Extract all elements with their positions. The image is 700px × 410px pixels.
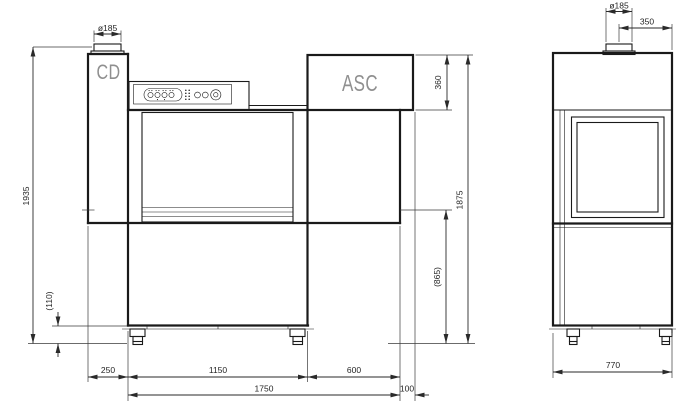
panel-button-marks xyxy=(149,90,174,100)
panel-button-icon xyxy=(169,92,174,97)
dim-cabinet-width-label: 1150 xyxy=(209,365,228,375)
technical-drawing-canvas: CD xyxy=(0,0,700,410)
cd-duct-tower: CD xyxy=(88,54,128,326)
dim-frame-length-label: 1750 xyxy=(255,384,274,394)
dim-base-height: (110) xyxy=(44,291,127,357)
dim-depth: 770 xyxy=(553,333,672,378)
side-door-window xyxy=(577,123,658,213)
dim-side-chimney-diameter-label: ø185 xyxy=(609,1,629,11)
dim-body-height-label: 1875 xyxy=(455,190,465,209)
machine-foot xyxy=(290,329,305,345)
dim-front-chimney-diameter: ø185 xyxy=(94,23,121,42)
panel-lamp-icon xyxy=(202,92,208,98)
asc-label: ASC xyxy=(342,70,378,96)
hood-section xyxy=(82,106,400,326)
front-view: CD xyxy=(21,23,475,401)
panel-lamp-icon xyxy=(195,92,201,98)
dim-outfeed-width-label: 600 xyxy=(347,365,361,375)
dim-overall-height: 1935 xyxy=(21,47,127,344)
machine-foot xyxy=(660,329,673,345)
dim-front-chimney-diameter-label: ø185 xyxy=(98,23,118,33)
panel-knob-icon xyxy=(211,90,221,100)
hood-door-panel xyxy=(142,113,293,223)
side-body-outline xyxy=(553,53,672,326)
control-panel xyxy=(129,82,249,111)
cd-label: CD xyxy=(97,61,121,84)
dim-chimney-offset-label: 350 xyxy=(640,17,654,27)
dim-belt-height-label: (865) xyxy=(432,267,442,287)
side-body xyxy=(549,53,676,345)
machine-foot xyxy=(130,329,145,345)
asc-unit: ASC xyxy=(308,55,414,223)
panel-button-icon xyxy=(155,92,160,97)
side-door-frame xyxy=(572,117,665,218)
dim-asc-overhang-label: 100 xyxy=(400,384,414,394)
panel-button-icon xyxy=(148,92,153,97)
side-view: ø185 350 770 xyxy=(549,1,676,379)
indicator-dot-grid-icon xyxy=(185,89,190,100)
machine-foot xyxy=(567,329,580,345)
dim-asc-height-label: 360 xyxy=(433,75,443,89)
panel-knob-center-icon xyxy=(214,93,218,97)
dim-overall-height-label: 1935 xyxy=(21,186,31,205)
dim-base-height-label: (110) xyxy=(44,291,54,310)
panel-button-icon xyxy=(162,92,167,97)
dim-depth-label: 770 xyxy=(606,360,620,370)
lower-cabinet xyxy=(122,326,314,345)
dim-infeed-offset-label: 250 xyxy=(101,365,115,375)
dishwasher-drawing: CD xyxy=(0,0,700,410)
dim-bottom-chain: 250 1150 600 1750 100 xyxy=(88,112,429,401)
